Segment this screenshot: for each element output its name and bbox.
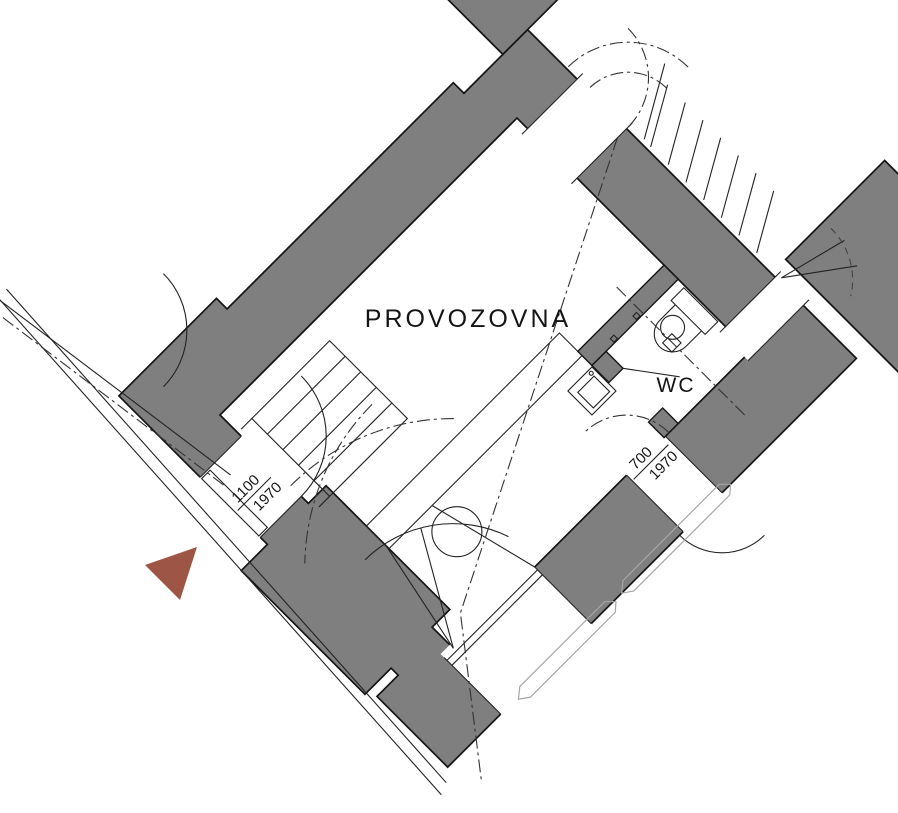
counter <box>366 333 582 549</box>
entrance-marker-triangle <box>145 547 197 600</box>
floor-plan-canvas: 1100 1970 700 1970 PROVOZOVNA WC <box>0 0 898 813</box>
room-label-provozovna: PROVOZOVNA <box>365 305 571 333</box>
floor-plan-page: 1100 1970 700 1970 PROVOZOVNA WC <box>0 0 898 813</box>
room-label-wc: WC <box>657 374 696 397</box>
round-table <box>422 496 493 567</box>
